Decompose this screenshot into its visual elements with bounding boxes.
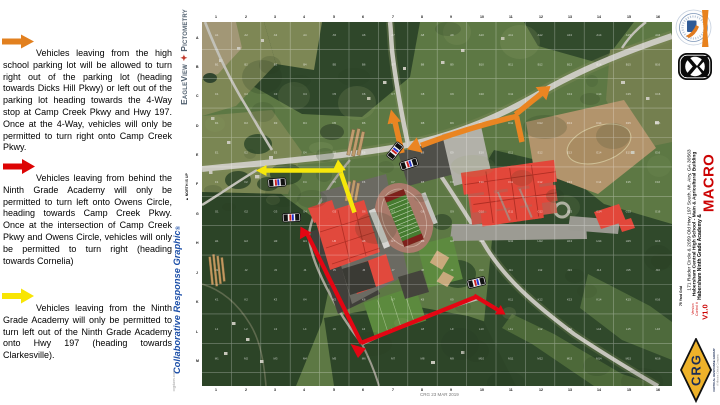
svg-text:A14: A14 xyxy=(596,33,601,37)
svg-text:D3: D3 xyxy=(274,121,278,125)
svg-text:J8: J8 xyxy=(421,268,424,272)
svg-text:K2: K2 xyxy=(244,298,248,302)
svg-text:D11: D11 xyxy=(508,121,513,125)
svg-text:E14: E14 xyxy=(596,151,601,155)
svg-text:F16: F16 xyxy=(655,180,660,184)
svg-text:M11: M11 xyxy=(508,356,514,360)
svg-text:B7: B7 xyxy=(391,62,395,66)
svg-text:A15: A15 xyxy=(626,33,631,37)
svg-text:L14: L14 xyxy=(597,327,602,331)
svg-text:L6: L6 xyxy=(362,327,366,331)
svg-text:E9: E9 xyxy=(450,151,454,155)
svg-text:L16: L16 xyxy=(655,327,660,331)
svg-text:L1: L1 xyxy=(215,327,219,331)
svg-text:H1: H1 xyxy=(215,239,219,243)
svg-text:F7: F7 xyxy=(391,180,395,184)
svg-text:H4: H4 xyxy=(303,239,307,243)
svg-text:G16: G16 xyxy=(655,209,661,213)
svg-text:D2: D2 xyxy=(244,121,248,125)
svg-text:B5: B5 xyxy=(333,62,337,66)
svg-text:C2: C2 xyxy=(244,92,248,96)
svg-text:CRG: CRG xyxy=(689,354,704,386)
svg-text:K15: K15 xyxy=(626,298,631,302)
svg-text:H14: H14 xyxy=(596,239,602,243)
svg-text:C3: C3 xyxy=(274,92,278,96)
svg-text:G8: G8 xyxy=(421,209,425,213)
svg-text:A2: A2 xyxy=(244,33,248,37)
svg-text:L4: L4 xyxy=(303,327,307,331)
svg-text:C16: C16 xyxy=(655,92,661,96)
svg-text:C10: C10 xyxy=(479,92,485,96)
svg-text:H10: H10 xyxy=(479,239,485,243)
svg-text:D9: D9 xyxy=(450,121,454,125)
svg-text:C7: C7 xyxy=(391,92,395,96)
svg-text:M2: M2 xyxy=(244,356,248,360)
svg-text:C9: C9 xyxy=(450,92,454,96)
svg-text:M14: M14 xyxy=(596,356,602,360)
svg-text:E12: E12 xyxy=(538,151,543,155)
svg-text:H15: H15 xyxy=(626,239,632,243)
svg-text:G7: G7 xyxy=(391,209,395,213)
svg-text:F2: F2 xyxy=(244,180,248,184)
svg-text:C13: C13 xyxy=(567,92,573,96)
svg-text:M8: M8 xyxy=(421,356,425,360)
svg-text:A16: A16 xyxy=(655,33,660,37)
svg-text:B2: B2 xyxy=(244,62,248,66)
svg-text:G13: G13 xyxy=(567,209,573,213)
svg-text:C6: C6 xyxy=(362,92,366,96)
svg-text:A5: A5 xyxy=(333,33,337,37)
svg-text:G4: G4 xyxy=(303,209,307,213)
svg-text:M16: M16 xyxy=(655,356,661,360)
svg-text:K7: K7 xyxy=(391,298,395,302)
svg-text:L13: L13 xyxy=(567,327,572,331)
svg-text:E13: E13 xyxy=(567,151,572,155)
svg-text:J5: J5 xyxy=(333,268,336,272)
svg-text:A4: A4 xyxy=(303,33,307,37)
svg-text:D5: D5 xyxy=(333,121,337,125)
svg-text:L8: L8 xyxy=(421,327,425,331)
svg-text:E15: E15 xyxy=(626,151,631,155)
svg-text:G9: G9 xyxy=(450,209,454,213)
svg-text:J10: J10 xyxy=(479,268,484,272)
svg-text:F6: F6 xyxy=(362,180,366,184)
svg-text:F12: F12 xyxy=(538,180,543,184)
svg-text:C4: C4 xyxy=(303,92,307,96)
svg-text:B14: B14 xyxy=(596,62,601,66)
svg-text:F8: F8 xyxy=(421,180,425,184)
svg-text:J4: J4 xyxy=(303,268,306,272)
svg-text:D12: D12 xyxy=(538,121,544,125)
svg-text:D16: D16 xyxy=(655,121,661,125)
svg-text:K8: K8 xyxy=(421,298,425,302)
svg-text:J2: J2 xyxy=(245,268,248,272)
svg-text:B12: B12 xyxy=(538,62,543,66)
svg-text:J11: J11 xyxy=(509,268,514,272)
svg-text:H9: H9 xyxy=(450,239,454,243)
svg-text:J16: J16 xyxy=(655,268,660,272)
svg-text:C8: C8 xyxy=(421,92,425,96)
svg-text:M7: M7 xyxy=(391,356,395,360)
svg-text:E5: E5 xyxy=(333,151,337,155)
svg-text:H7: H7 xyxy=(391,239,395,243)
svg-text:F14: F14 xyxy=(596,180,601,184)
svg-text:B8: B8 xyxy=(421,62,425,66)
svg-text:K13: K13 xyxy=(567,298,572,302)
svg-text:M3: M3 xyxy=(274,356,278,360)
svg-text:B11: B11 xyxy=(508,62,513,66)
svg-text:H3: H3 xyxy=(274,239,278,243)
svg-text:B3: B3 xyxy=(274,62,278,66)
svg-text:J1: J1 xyxy=(215,268,218,272)
svg-text:J12: J12 xyxy=(538,268,543,272)
svg-text:G2: G2 xyxy=(244,209,248,213)
svg-text:J3: J3 xyxy=(274,268,277,272)
svg-text:A12: A12 xyxy=(538,33,543,37)
svg-text:F4: F4 xyxy=(303,180,307,184)
svg-text:K1: K1 xyxy=(215,298,219,302)
svg-text:E11: E11 xyxy=(508,151,513,155)
svg-text:G6: G6 xyxy=(362,209,366,213)
svg-text:D14: D14 xyxy=(596,121,602,125)
svg-text:M13: M13 xyxy=(567,356,573,360)
svg-text:L15: L15 xyxy=(626,327,631,331)
svg-text:K14: K14 xyxy=(596,298,601,302)
svg-text:B6: B6 xyxy=(362,62,366,66)
svg-text:G5: G5 xyxy=(332,209,336,213)
svg-text:E10: E10 xyxy=(479,151,484,155)
svg-text:M10: M10 xyxy=(479,356,485,360)
svg-text:M6: M6 xyxy=(362,356,366,360)
svg-text:B1: B1 xyxy=(215,62,219,66)
svg-text:K9: K9 xyxy=(450,298,454,302)
svg-text:A6: A6 xyxy=(362,33,366,37)
svg-text:A11: A11 xyxy=(508,33,513,37)
svg-text:E16: E16 xyxy=(655,151,660,155)
svg-text:K3: K3 xyxy=(274,298,278,302)
svg-text:M1: M1 xyxy=(215,356,219,360)
svg-text:J14: J14 xyxy=(597,268,602,272)
svg-text:F15: F15 xyxy=(626,180,631,184)
svg-text:E4: E4 xyxy=(303,151,307,155)
svg-text:B13: B13 xyxy=(567,62,572,66)
svg-text:H13: H13 xyxy=(567,239,573,243)
svg-text:L12: L12 xyxy=(538,327,543,331)
svg-text:B15: B15 xyxy=(626,62,631,66)
svg-text:A8: A8 xyxy=(421,33,425,37)
svg-text:K11: K11 xyxy=(508,298,513,302)
svg-text:E1: E1 xyxy=(215,151,219,155)
svg-text:H8: H8 xyxy=(421,239,425,243)
svg-text:J9: J9 xyxy=(450,268,453,272)
svg-text:C5: C5 xyxy=(333,92,337,96)
svg-text:L11: L11 xyxy=(508,327,513,331)
svg-text:H5: H5 xyxy=(333,239,337,243)
svg-text:L2: L2 xyxy=(245,327,249,331)
svg-text:L10: L10 xyxy=(479,327,484,331)
svg-text:H2: H2 xyxy=(244,239,248,243)
svg-text:H12: H12 xyxy=(538,239,544,243)
svg-text:K6: K6 xyxy=(362,298,366,302)
svg-text:K16: K16 xyxy=(655,298,660,302)
svg-text:G12: G12 xyxy=(537,209,543,213)
svg-text:L3: L3 xyxy=(274,327,278,331)
svg-text:L5: L5 xyxy=(333,327,337,331)
svg-text:L9: L9 xyxy=(450,327,454,331)
svg-text:K12: K12 xyxy=(538,298,543,302)
svg-text:M5: M5 xyxy=(332,356,336,360)
svg-text:D4: D4 xyxy=(303,121,307,125)
svg-text:C11: C11 xyxy=(508,92,513,96)
svg-text:G11: G11 xyxy=(508,209,514,213)
svg-text:J7: J7 xyxy=(392,268,395,272)
svg-text:K4: K4 xyxy=(303,298,307,302)
svg-text:F10: F10 xyxy=(479,180,484,184)
svg-text:F11: F11 xyxy=(508,180,513,184)
svg-text:F13: F13 xyxy=(567,180,572,184)
svg-text:E3: E3 xyxy=(274,151,278,155)
svg-text:D1: D1 xyxy=(215,121,219,125)
svg-text:C14: C14 xyxy=(596,92,602,96)
svg-text:F5: F5 xyxy=(333,180,337,184)
svg-text:D13: D13 xyxy=(567,121,573,125)
svg-text:M9: M9 xyxy=(450,356,454,360)
svg-text:A13: A13 xyxy=(567,33,572,37)
svg-text:K5: K5 xyxy=(333,298,337,302)
svg-text:A7: A7 xyxy=(391,33,395,37)
svg-text:G1: G1 xyxy=(215,209,219,213)
svg-text:C15: C15 xyxy=(626,92,632,96)
svg-text:H16: H16 xyxy=(655,239,661,243)
svg-text:M15: M15 xyxy=(626,356,632,360)
svg-text:M12: M12 xyxy=(537,356,543,360)
svg-text:J13: J13 xyxy=(567,268,572,272)
svg-text:D8: D8 xyxy=(421,121,425,125)
svg-text:E6: E6 xyxy=(362,151,366,155)
svg-text:A10: A10 xyxy=(479,33,484,37)
svg-text:C1: C1 xyxy=(215,92,219,96)
svg-text:D6: D6 xyxy=(362,121,366,125)
svg-text:A1: A1 xyxy=(215,33,219,37)
svg-text:E2: E2 xyxy=(244,151,248,155)
svg-text:G3: G3 xyxy=(274,209,278,213)
svg-text:J6: J6 xyxy=(362,268,365,272)
svg-text:B9: B9 xyxy=(450,62,454,66)
svg-text:B10: B10 xyxy=(479,62,484,66)
svg-text:G14: G14 xyxy=(596,209,602,213)
svg-text:F1: F1 xyxy=(215,180,219,184)
svg-text:M4: M4 xyxy=(303,356,307,360)
svg-text:A3: A3 xyxy=(274,33,278,37)
svg-text:F9: F9 xyxy=(450,180,454,184)
svg-text:H11: H11 xyxy=(508,239,513,243)
svg-text:A9: A9 xyxy=(450,33,454,37)
svg-text:D15: D15 xyxy=(626,121,632,125)
svg-text:G10: G10 xyxy=(479,209,485,213)
svg-text:H6: H6 xyxy=(362,239,366,243)
svg-text:B4: B4 xyxy=(303,62,307,66)
svg-text:G15: G15 xyxy=(626,209,632,213)
svg-text:B16: B16 xyxy=(655,62,660,66)
svg-text:J15: J15 xyxy=(626,268,631,272)
